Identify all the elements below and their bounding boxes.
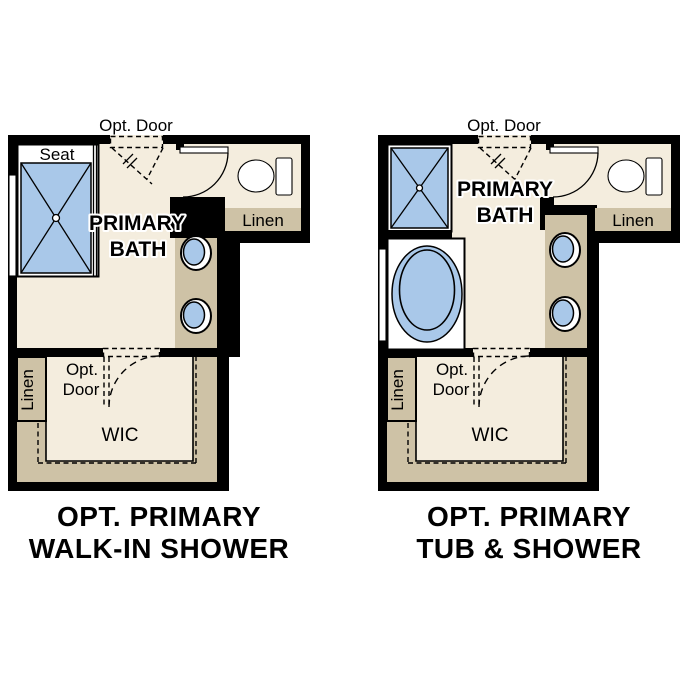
caption-tub-and-shower: OPT. PRIMARY TUB & SHOWER <box>378 501 680 565</box>
opt-door-top-label: Opt. Door <box>99 116 173 135</box>
door-label: Door <box>433 380 470 399</box>
seat-label: Seat <box>40 145 75 164</box>
door-label: Door <box>63 380 100 399</box>
sink-fixture <box>550 233 580 267</box>
caption-line2: WALK-IN SHOWER <box>8 533 310 565</box>
shower-drain <box>53 215 60 222</box>
plan-tub-and-shower: Linen <box>378 116 680 491</box>
window <box>9 175 16 276</box>
floorplan-drawing: Linen Seat <box>0 0 687 687</box>
caption-line1: OPT. PRIMARY <box>378 501 680 533</box>
sink-fixture <box>181 299 211 333</box>
shower-fixture <box>388 145 452 232</box>
primary-bath-label-line1: PRIMARY <box>457 178 553 201</box>
plan-walk-in-shower: Linen Seat <box>8 116 310 491</box>
window <box>379 249 386 341</box>
tub-fixture <box>388 239 465 350</box>
linen-bath-label: Linen <box>242 211 284 230</box>
linen-wic-label: Linen <box>388 369 407 411</box>
opt-label: Opt. <box>66 360 98 379</box>
floorplan-page: Linen Seat <box>0 0 687 687</box>
caption-line2: TUB & SHOWER <box>378 533 680 565</box>
shower-drain <box>417 185 423 191</box>
wall-below-shower <box>378 230 452 238</box>
wic-door-opening <box>473 348 530 357</box>
primary-bath-label-line2: BATH <box>110 238 167 261</box>
sink-fixture <box>181 236 211 270</box>
toilet-fixture <box>238 158 292 195</box>
wall-under-toilet-room <box>554 205 597 215</box>
linen-bath-label: Linen <box>612 211 654 230</box>
caption-line1: OPT. PRIMARY <box>8 501 310 533</box>
opt-door-top-label: Opt. Door <box>467 116 541 135</box>
wic-room: Linen Opt. Door WIC <box>387 349 587 483</box>
sink-fixture <box>550 297 580 331</box>
linen-wic-label: Linen <box>18 369 37 411</box>
toilet-fixture <box>608 158 662 195</box>
shower-fixture <box>18 145 99 277</box>
opt-label: Opt. <box>436 360 468 379</box>
primary-bath-label-line1: PRIMARY <box>89 212 185 235</box>
primary-bath-label-line2: BATH <box>477 204 534 227</box>
wic-label: WIC <box>472 425 509 446</box>
wic-door-opening <box>103 348 160 357</box>
wic-room: Linen Opt. Door WIC <box>17 349 217 483</box>
wic-label: WIC <box>102 425 139 446</box>
caption-walk-in-shower: OPT. PRIMARY WALK-IN SHOWER <box>8 501 310 565</box>
toilet-doorway <box>176 150 184 197</box>
